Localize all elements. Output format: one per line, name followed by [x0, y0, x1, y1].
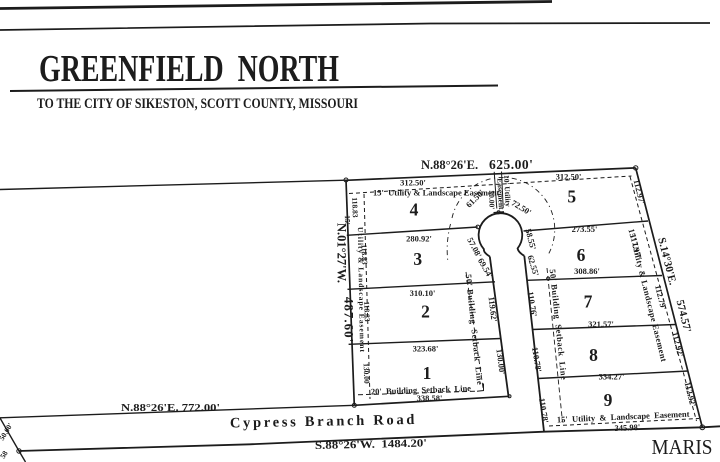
- svg-text:338.58': 338.58': [417, 393, 443, 403]
- svg-text:9: 9: [604, 390, 613, 410]
- svg-text:MARIS: MARIS: [652, 435, 713, 459]
- svg-text:308.86': 308.86': [574, 266, 600, 276]
- svg-text:118.83: 118.83: [362, 301, 372, 322]
- svg-text:312.50': 312.50': [400, 178, 426, 188]
- svg-text:TO THE CITY OF SIKESTON, SCOTT: TO THE CITY OF SIKESTON, SCOTT COUNTY, M…: [37, 96, 358, 112]
- svg-text:321.57': 321.57': [588, 319, 614, 329]
- svg-text:7: 7: [584, 292, 593, 312]
- svg-text:273.55': 273.55': [572, 224, 598, 234]
- svg-text:345.98': 345.98': [614, 422, 640, 433]
- svg-text:4: 4: [410, 200, 419, 220]
- svg-text:5: 5: [567, 187, 576, 207]
- svg-text:118.83: 118.83: [350, 197, 360, 218]
- svg-text:GREENFIELD NORTH: GREENFIELD NORTH: [39, 48, 339, 90]
- svg-text:2: 2: [421, 302, 430, 322]
- svg-text:310.10': 310.10': [410, 288, 436, 298]
- svg-text:334.27': 334.27': [599, 372, 625, 382]
- svg-text:15': 15': [343, 215, 352, 225]
- svg-text:S.88°26'W. 1484.20': S.88°26'W. 1484.20': [315, 437, 427, 452]
- svg-text:118.83: 118.83: [360, 244, 370, 265]
- svg-text:280.92': 280.92': [406, 234, 432, 244]
- svg-text:323.68': 323.68': [413, 344, 439, 354]
- svg-text:1: 1: [423, 363, 432, 383]
- svg-text:625.00': 625.00': [489, 157, 533, 172]
- svg-text:3: 3: [413, 249, 422, 269]
- svg-text:N.88°26'E. 772.00': N.88°26'E. 772.00': [121, 402, 220, 414]
- svg-text:6: 6: [577, 245, 586, 265]
- svg-text:130.00: 130.00: [362, 363, 372, 384]
- svg-text:8: 8: [589, 345, 598, 365]
- svg-text:487.60': 487.60': [342, 297, 357, 343]
- svg-text:N.01°27'W.: N.01°27'W.: [335, 223, 349, 283]
- svg-text:N.88°26'E.: N.88°26'E.: [421, 158, 478, 172]
